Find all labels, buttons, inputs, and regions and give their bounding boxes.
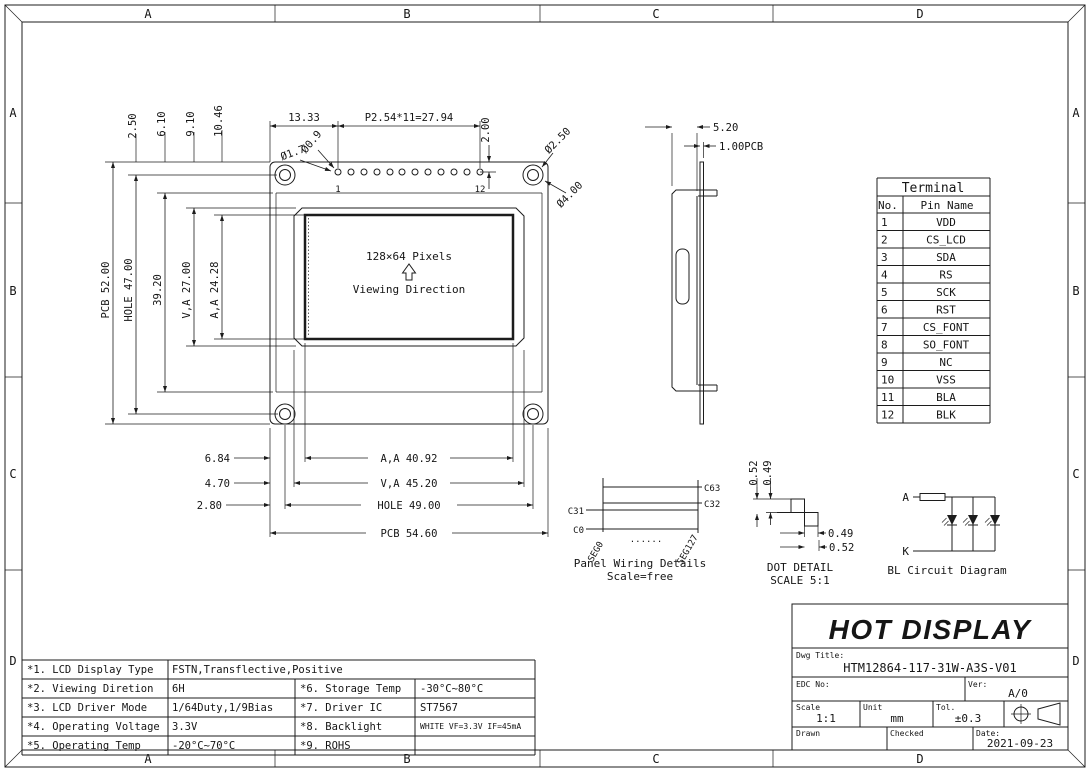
pin-1-label: 1: [335, 185, 340, 195]
mounting-hole-bottom-right: [523, 404, 543, 424]
checked-label: Checked: [890, 729, 924, 738]
dim-2-50: 2.50: [127, 113, 139, 138]
svg-text:*2. Viewing Diretion: *2. Viewing Diretion: [27, 683, 153, 695]
svg-text:-30°C~80°C: -30°C~80°C: [420, 683, 483, 695]
dim-2-80: 2.80: [197, 500, 222, 512]
title-block: HOT DISPLAY Dwg Title: HTM12864-117-31W-…: [792, 604, 1068, 750]
zone-label-top-a: A: [144, 7, 152, 21]
bl-circuit-diagram: A K BL Circuit Diagram: [887, 491, 1007, 577]
svg-text:2: 2: [881, 234, 888, 247]
zone-label-bottom-c: C: [652, 752, 659, 766]
mounting-hole-top-right: [523, 165, 543, 185]
viewing-note: Viewing Direction: [353, 283, 466, 296]
dim-hole-height: HOLE 47.00: [123, 258, 135, 321]
dim-6-10: 6.10: [156, 111, 168, 136]
panel-wiring-details: C63 C32 C31 C0 SEG0 SEG127 ...... Panel …: [568, 478, 721, 583]
svg-text:3.3V: 3.3V: [172, 721, 198, 733]
svg-text:*6. Storage Temp: *6. Storage Temp: [300, 683, 401, 695]
dwg-title-label: Dwg Title:: [796, 651, 844, 660]
dot-detail-caption: DOT DETAIL: [767, 561, 834, 574]
svg-text:*8. Backlight: *8. Backlight: [300, 721, 382, 733]
dot-dim-v049: 0.49: [762, 460, 774, 485]
bezel-outline: [294, 208, 524, 346]
pin-12-label: 12: [475, 185, 486, 195]
svg-text:BLA: BLA: [936, 391, 956, 404]
dim-39-20: 39.20: [152, 274, 164, 306]
svg-text:VSS: VSS: [936, 374, 956, 387]
svg-text:9: 9: [881, 356, 888, 369]
svg-text:SCK: SCK: [936, 286, 956, 299]
dim-aa-width: A,A 40.92: [381, 453, 438, 465]
svg-text:*1. LCD Display Type: *1. LCD Display Type: [27, 664, 153, 676]
zone-label-left-c: C: [9, 467, 16, 481]
zone-label-bottom-d: D: [916, 752, 923, 766]
svg-text:*3. LCD Driver Mode: *3. LCD Driver Mode: [27, 702, 147, 714]
zone-label-top-d: D: [916, 7, 923, 21]
display-window: [305, 215, 513, 339]
dim-pitch: P2.54*11=27.94: [365, 112, 454, 124]
dim-pcb-thickness: 1.00PCB: [719, 141, 763, 153]
mounting-hole-top-left: [275, 165, 295, 185]
svg-text:11: 11: [881, 391, 894, 404]
drawn-label: Drawn: [796, 729, 820, 738]
dot-detail-scale: SCALE 5:1: [770, 574, 830, 587]
company-logo: HOT DISPLAY: [829, 614, 1032, 645]
svg-text:SDA: SDA: [936, 251, 956, 264]
engineering-drawing-page: A B C D A B C D A B C D A B C D: [0, 0, 1090, 772]
svg-text:*5. Operating Temp: *5. Operating Temp: [27, 740, 141, 752]
svg-text:CS_FONT: CS_FONT: [923, 321, 970, 334]
svg-text:BLK: BLK: [936, 409, 956, 422]
dot-dim-h052: 0.52: [829, 542, 854, 554]
terminal-col-no: No.: [878, 199, 898, 212]
zone-label-right-a: A: [1072, 106, 1080, 120]
svg-text:ST7567: ST7567: [420, 702, 458, 714]
svg-text:SO_FONT: SO_FONT: [923, 339, 970, 352]
wiring-c32: C32: [704, 500, 720, 510]
bl-anode-label: A: [902, 491, 909, 504]
dim-9-10: 9.10: [185, 111, 197, 136]
svg-text:*9. ROHS: *9. ROHS: [300, 740, 351, 752]
terminal-col-name: Pin Name: [921, 199, 974, 212]
zone-label-left-d: D: [9, 654, 16, 668]
ver-label: Ver:: [968, 680, 987, 689]
terminal-table: Terminal No. Pin Name 1VDD 2CS_LCD 3SDA …: [877, 178, 990, 423]
viewing-direction-arrow-icon: [403, 264, 416, 280]
scale-value: 1:1: [816, 712, 836, 725]
dim-thickness: 5.20: [713, 122, 738, 134]
bl-cathode-label: K: [902, 545, 909, 558]
dim-va-height: V,A 27.00: [181, 262, 193, 319]
dim-4-70: 4.70: [205, 478, 230, 490]
zone-label-bottom-b: B: [403, 752, 410, 766]
scale-label: Scale: [796, 703, 820, 712]
svg-text:7: 7: [881, 321, 888, 334]
terminal-table-title: Terminal: [902, 181, 965, 196]
dim-aa-height: A,A 24.28: [209, 262, 221, 319]
dot-dim-h049: 0.49: [828, 528, 853, 540]
svg-text:*4. Operating Voltage: *4. Operating Voltage: [27, 721, 160, 733]
svg-text:FSTN,Transflective,Positive: FSTN,Transflective,Positive: [172, 664, 343, 676]
wiring-c31: C31: [568, 507, 584, 517]
svg-text:12: 12: [881, 409, 894, 422]
dim-2-00: 2.00: [480, 117, 492, 142]
zone-label-top-c: C: [652, 7, 659, 21]
svg-text:8: 8: [881, 339, 888, 352]
edc-no-label: EDC No:: [796, 680, 830, 689]
led-icons: [942, 515, 1000, 526]
projection-symbol-icon: [1011, 703, 1060, 725]
zone-label-left-a: A: [9, 106, 17, 120]
wiring-c0: C0: [573, 526, 584, 536]
dim-13-33: 13.33: [288, 112, 320, 124]
front-view: 1 12 128×64 Pixels Viewing Direction: [270, 162, 548, 424]
date-value: 2021-09-23: [987, 737, 1053, 750]
bezel-side: [672, 190, 717, 391]
wiring-caption: Panel Wiring Details: [574, 557, 706, 570]
dim-10-46: 10.46: [213, 105, 225, 137]
svg-text:RST: RST: [936, 304, 956, 317]
bl-caption: BL Circuit Diagram: [887, 564, 1007, 577]
svg-text:3: 3: [881, 251, 888, 264]
specs-row-5: *5. Operating Temp -20°C~70°C *9. ROHS: [27, 740, 351, 752]
svg-text:*7. Driver IC: *7. Driver IC: [300, 702, 382, 714]
unit-label: Unit: [863, 703, 882, 712]
specs-row-4: *4. Operating Voltage 3.3V *8. Backlight…: [27, 721, 521, 733]
tol-value: ±0.3: [955, 712, 982, 725]
specs-row-3: *3. LCD Driver Mode 1/64Duty,1/9Bias *7.…: [27, 702, 458, 714]
zone-label-top-b: B: [403, 7, 410, 21]
specs-row-1: *1. LCD Display Type FSTN,Transflective,…: [27, 664, 343, 676]
svg-text:VDD: VDD: [936, 216, 956, 229]
svg-text:1/64Duty,1/9Bias: 1/64Duty,1/9Bias: [172, 702, 273, 714]
dwg-title-value: HTM12864-117-31W-A3S-V01: [843, 661, 1016, 675]
dim-va-width: V,A 45.20: [381, 478, 438, 490]
svg-text:CS_LCD: CS_LCD: [926, 234, 966, 247]
dot-dim-v052: 0.52: [748, 460, 760, 485]
dim-mount-pad: Ø4.00: [554, 179, 585, 210]
zone-label-right-c: C: [1072, 467, 1079, 481]
dim-pcb-height: PCB 52.00: [100, 262, 112, 319]
svg-text:NC: NC: [939, 356, 952, 369]
zone-label-right-d: D: [1072, 654, 1079, 668]
wiring-scale: Scale=free: [607, 570, 673, 583]
dim-pin-hole: Ø0.9: [299, 129, 324, 156]
dot-detail: 0.52 0.49 0.49 0.52 DOT DETAIL SCALE 5:1: [748, 460, 854, 587]
wiring-c63: C63: [704, 484, 720, 494]
terminal-rows: 1VDD 2CS_LCD 3SDA 4RS 5SCK 6RST 7CS_FONT…: [881, 216, 970, 422]
wiring-dots: ......: [630, 535, 663, 545]
svg-text:6H: 6H: [172, 683, 185, 695]
unit-value: mm: [890, 712, 904, 725]
tol-label: Tol.: [936, 703, 955, 712]
svg-text:-20°C~70°C: -20°C~70°C: [172, 740, 235, 752]
svg-text:RS: RS: [939, 269, 952, 282]
svg-text:4: 4: [881, 269, 888, 282]
pin-holes: [335, 169, 483, 175]
pixels-note: 128×64 Pixels: [366, 250, 452, 263]
zone-label-bottom-a: A: [144, 752, 152, 766]
svg-text:10: 10: [881, 374, 894, 387]
svg-text:WHITE VF=3.3V IF=45mA: WHITE VF=3.3V IF=45mA: [420, 722, 521, 731]
svg-text:5: 5: [881, 286, 888, 299]
specs-table: *1. LCD Display Type FSTN,Transflective,…: [22, 660, 535, 755]
svg-text:1: 1: [881, 216, 888, 229]
bezel-slot: [676, 249, 689, 304]
dim-6-84: 6.84: [205, 453, 230, 465]
zone-label-left-b: B: [9, 284, 16, 298]
zone-label-right-b: B: [1072, 284, 1079, 298]
dim-pcb-width: PCB 54.60: [381, 528, 438, 540]
ver-value: A/0: [1008, 687, 1028, 700]
dim-hole-width: HOLE 49.00: [377, 500, 440, 512]
dim-mount-hole: Ø2.50: [542, 125, 573, 156]
side-view: 5.20 1.00PCB: [645, 122, 763, 424]
svg-text:6: 6: [881, 304, 888, 317]
drawing-canvas: A B C D A B C D A B C D A B C D: [0, 0, 1090, 772]
resistor-icon: [920, 494, 945, 501]
